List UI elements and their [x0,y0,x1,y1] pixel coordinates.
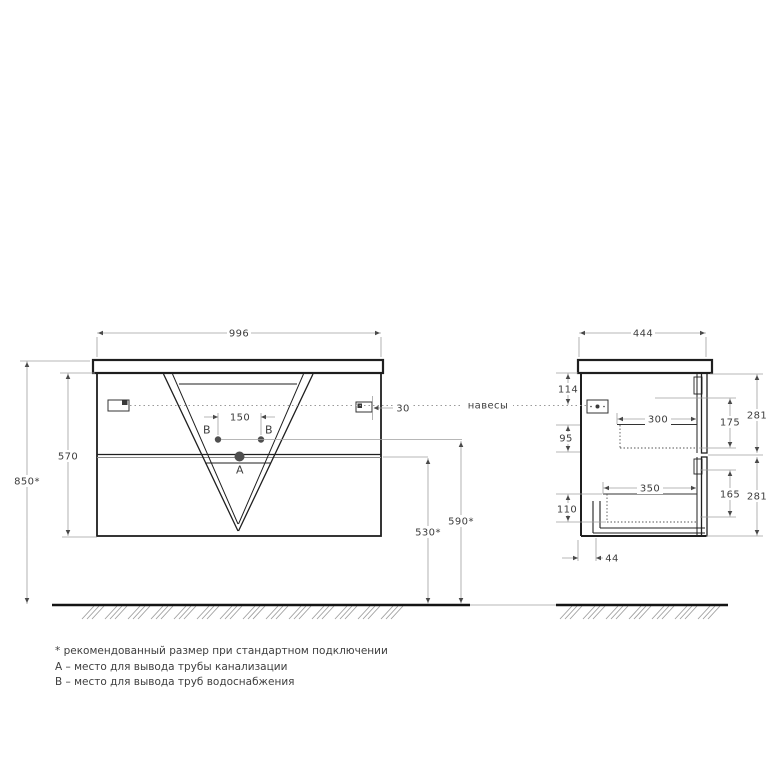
dim-top-drawer-depth: 300 [648,415,668,426]
dim-front-mount-height: 850* [14,477,40,488]
side-hanger-dot [596,405,600,409]
footnote-point-b: В – место для вывода труб водоснабжения [55,675,388,691]
dim-top-front-height: 281 [747,411,767,422]
dim-front-body-height: 570 [58,452,78,463]
side-countertop [578,360,712,373]
floor-hatching [82,606,720,619]
dim-bracket-offset: 30 [396,404,410,415]
label-point-a: A [236,464,244,477]
footnotes: * рекомендованный размер при стандартном… [55,644,388,691]
dim-bottom-front-height: 281 [747,492,767,503]
side-hanger-dot-small-right [603,406,605,408]
dim-top-drawer-inner-height: 175 [720,418,740,429]
front-countertop [93,360,383,373]
front-view [52,360,470,605]
dim-drawer-bottom-offset: 110 [557,505,577,516]
point-b-left-dot [215,436,221,442]
side-top-front-bracket [694,377,702,394]
plinth-channel [593,501,705,533]
label-hangers: навесы [468,401,509,412]
footnote-point-a: А – место для вывода трубы канализации [55,660,388,676]
point-a-dot [235,452,245,462]
dim-supply-outlet-height: 590* [448,517,474,528]
dim-bottom-drawer-depth: 350 [640,484,660,495]
dim-slide-to-gap: 95 [559,434,573,445]
label-point-b-left: B [203,424,211,437]
side-bottom-front-bracket [694,459,702,474]
technical-drawing-page: 996 570 850* 150 30 590* 530* B B A наве… [0,0,768,768]
side-hanger-dot-small-left [590,406,592,408]
dim-side-depth: 444 [633,329,653,340]
footnote-recommended-size: * рекомендованный размер при стандартном… [55,644,388,660]
dim-supply-spacing: 150 [230,413,250,424]
dim-bottom-drawer-inner-height: 165 [720,490,740,501]
dim-bracket-from-top: 114 [558,385,578,396]
bottom-drawer-box [607,494,697,522]
left-hanger-dot [122,401,128,406]
top-drawer-box [620,425,697,448]
label-point-b-right: B [265,424,273,437]
dim-back-clearance: 44 [605,554,619,565]
drawer-boxes-dotted [607,425,697,522]
dim-drain-outlet-height: 530* [415,528,441,539]
dim-front-width: 996 [229,329,249,340]
v-groove-inner [173,374,304,524]
